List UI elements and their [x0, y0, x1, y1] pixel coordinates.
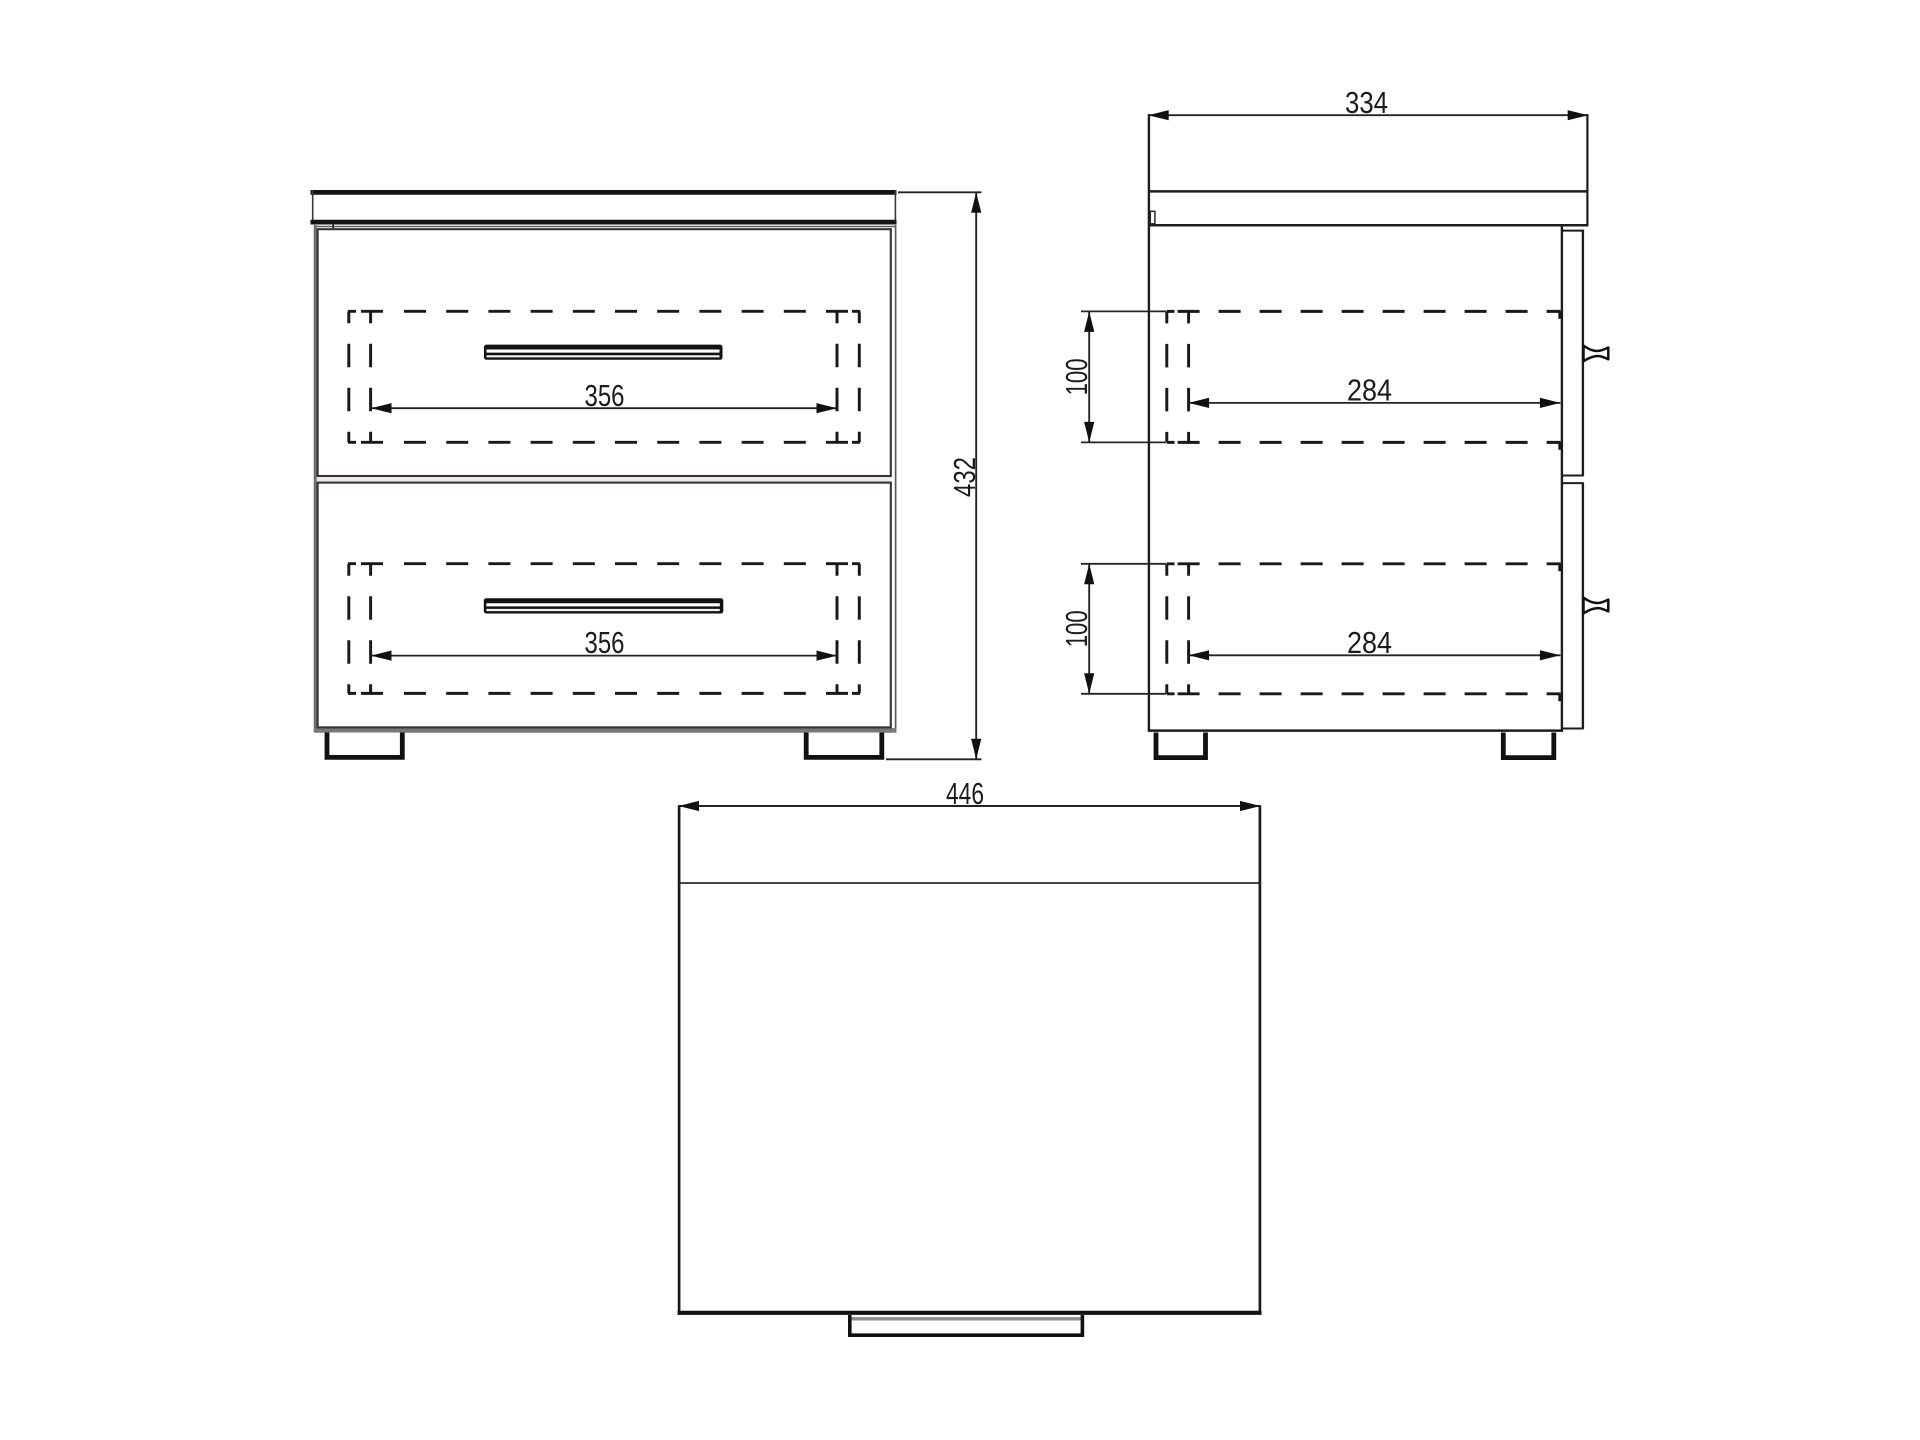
svg-text:100: 100 [1059, 610, 1094, 647]
svg-text:356: 356 [585, 625, 625, 660]
svg-text:100: 100 [1059, 358, 1094, 395]
svg-text:432: 432 [947, 457, 982, 497]
svg-text:446: 446 [946, 776, 984, 811]
svg-text:356: 356 [585, 378, 625, 413]
svg-text:334: 334 [1345, 85, 1388, 120]
svg-text:284: 284 [1347, 625, 1392, 660]
svg-text:284: 284 [1347, 373, 1392, 408]
